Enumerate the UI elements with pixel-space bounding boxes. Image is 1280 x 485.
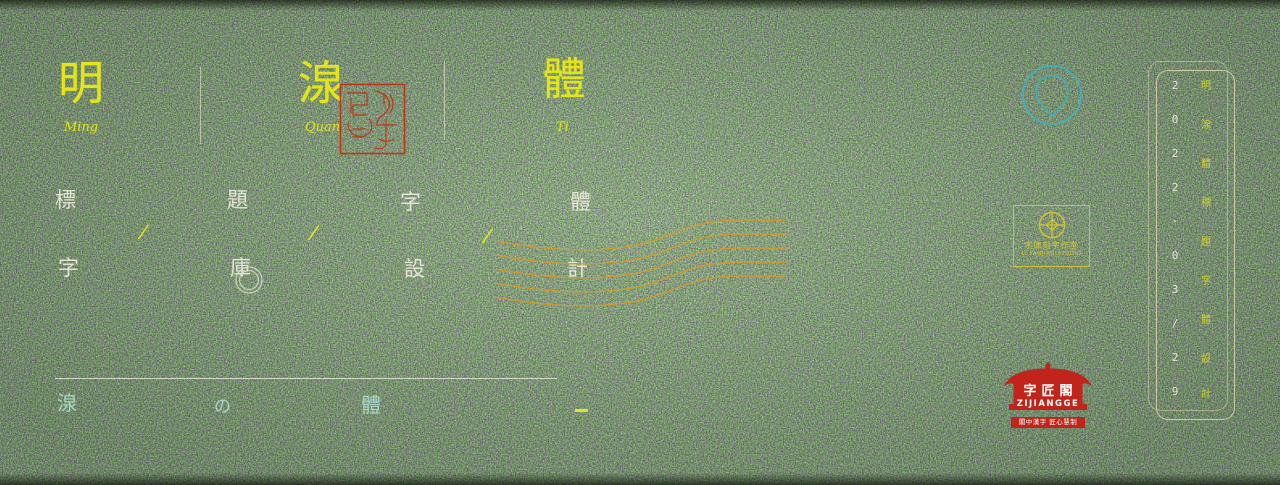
date-char: 0 xyxy=(1168,250,1182,261)
date-char: · xyxy=(1168,216,1182,227)
date-char: 2 xyxy=(1168,148,1182,159)
side-label-char: 設 xyxy=(1199,355,1213,365)
title-char-ming: 明 xyxy=(58,60,104,106)
keyword-char: 字 xyxy=(58,258,79,279)
latin-label-quan: Quan xyxy=(305,121,340,134)
stamp-en-label: LI YANJIAO STUDIO xyxy=(1014,252,1089,258)
keyword-char: 題 xyxy=(227,190,248,211)
keyword-char: 字 xyxy=(400,192,421,213)
footer-rule xyxy=(55,378,557,379)
side-label-char: 體 xyxy=(1199,316,1213,326)
side-label-char: 體 xyxy=(1199,160,1213,170)
brand-name-en: ZIJIANGGE xyxy=(1003,400,1093,409)
title-char-quan: 湶 xyxy=(298,60,344,106)
studio-stamp: 字庫刻字作室 LI YANJIAO STUDIO xyxy=(1013,205,1090,267)
date-char: 2 xyxy=(1168,80,1182,91)
trademark-mark: ™ xyxy=(1089,422,1095,428)
date-char: 2 xyxy=(1168,352,1182,363)
title-divider-1 xyxy=(200,67,201,144)
brand-name-cn: 字匠閣 xyxy=(1003,385,1093,398)
footer-char: 湶 xyxy=(57,393,77,413)
date-char: / xyxy=(1168,318,1182,329)
keyword-char: 設 xyxy=(404,259,425,280)
footer-char: 體 xyxy=(361,395,381,415)
flow-lines xyxy=(483,203,813,313)
date-char: 3 xyxy=(1168,284,1182,295)
stamp-cn-label: 字庫刻字作室 xyxy=(1014,242,1089,250)
keyword-char: 標 xyxy=(55,190,76,211)
brand-logo: 字匠閣 ZIJIANGGE 閣中漢字 匠心慧制 ™ xyxy=(1003,362,1097,432)
latin-label-ti: Ti xyxy=(556,121,569,134)
footer-char: の xyxy=(214,399,231,416)
poster-canvas: 明 Ming 湶 Quan 體 Ti 標 題 字 體 / / / 字 庫 設 計 xyxy=(0,0,1280,485)
stamp-emblem-icon xyxy=(1037,210,1067,240)
date-char: 2 xyxy=(1168,182,1182,193)
latin-label-ming: Ming xyxy=(64,121,98,134)
title-divider-2 xyxy=(444,61,445,140)
side-label-char: 湶 xyxy=(1199,121,1213,131)
side-label-char: 題 xyxy=(1199,238,1213,248)
brand-tagline: 閣中漢字 匠心慧制 xyxy=(1011,417,1085,428)
circle-ornament-icon xyxy=(234,265,266,297)
seal-stamp-icon xyxy=(339,83,406,155)
date-char: 9 xyxy=(1168,386,1182,397)
side-label-char: 字 xyxy=(1199,277,1213,287)
side-label-char: 計 xyxy=(1199,390,1213,400)
water-drop-logo-icon xyxy=(1017,60,1087,165)
side-label-char: 明 xyxy=(1199,82,1213,92)
date-char: 0 xyxy=(1168,114,1182,125)
title-char-ti: 體 xyxy=(542,58,586,102)
yellow-dash-mark xyxy=(575,409,588,412)
side-label-char: 標 xyxy=(1199,199,1213,209)
